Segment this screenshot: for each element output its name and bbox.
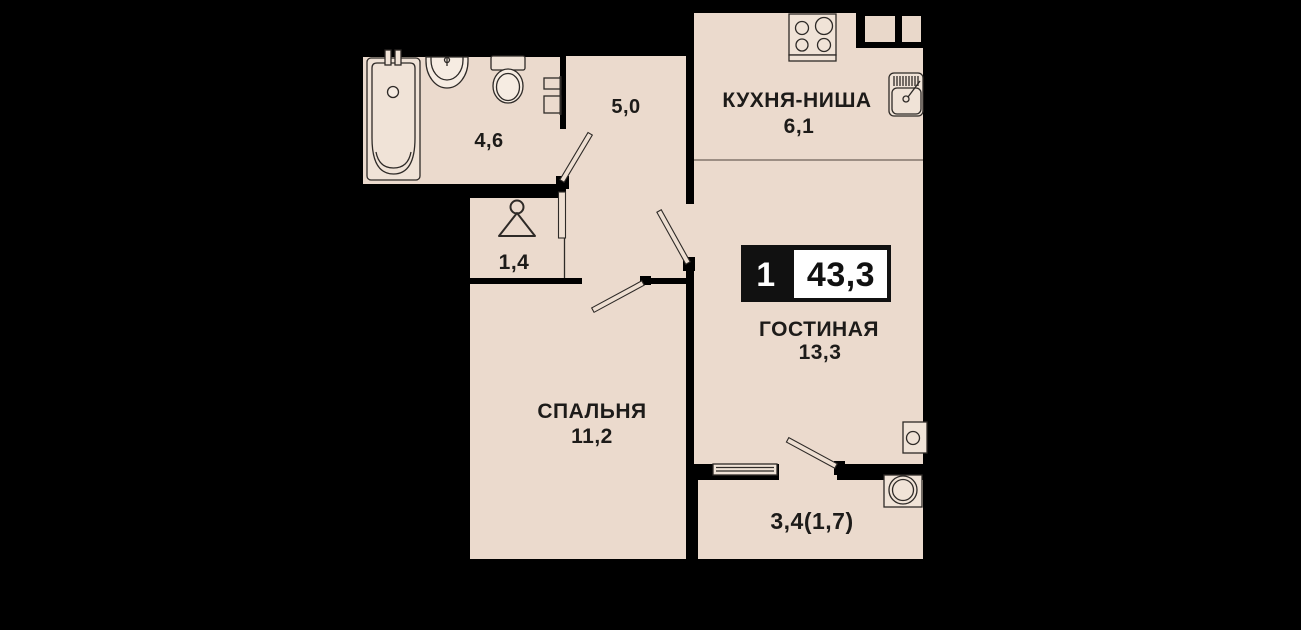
vent-shaft-a [865, 16, 895, 42]
total-area-badge: 1 43,3 [741, 245, 891, 302]
hall-floor [566, 56, 686, 278]
toilet-icon [491, 56, 525, 103]
bedroom-name-label: СПАЛЬНЯ [537, 400, 646, 423]
bathroom-area-label: 4,6 [474, 130, 503, 152]
washing-machine-icon [884, 475, 922, 507]
hall-area-label: 5,0 [611, 96, 640, 118]
living-name-label: ГОСТИНАЯ [759, 318, 879, 341]
balcony-door-opening [779, 464, 837, 480]
wardrobe-door-leaf-icon [559, 192, 566, 238]
floorplan-svg: 1 43,3 4,6 5,0 КУХНЯ-НИША 6,1 ГОСТИНАЯ 1… [0, 0, 1301, 630]
kitchen-sink-icon [889, 73, 923, 116]
badge-rooms-count: 1 [756, 256, 775, 294]
bedroom-door-opening [582, 277, 642, 284]
wardrobe-area-label: 1,4 [499, 251, 530, 274]
bathtub-icon [367, 50, 420, 180]
kitchen-name-label: КУХНЯ-НИША [722, 89, 871, 112]
stove-icon [789, 14, 836, 61]
balcony-area-label: 3,4(1,7) [770, 508, 853, 534]
kitchen-area-label: 6,1 [784, 115, 815, 138]
drainboard-hatching [894, 76, 918, 86]
bedroom-area-label: 11,2 [571, 425, 613, 448]
badge-total-area: 43,3 [807, 256, 875, 294]
hall-door-opening [686, 204, 694, 257]
boiler-icon [903, 422, 927, 453]
vent-shaft-b [902, 16, 921, 42]
window-icon [713, 464, 777, 475]
living-area-label: 13,3 [799, 341, 842, 364]
floorplan-canvas: 1 43,3 4,6 5,0 КУХНЯ-НИША 6,1 ГОСТИНАЯ 1… [0, 0, 1301, 630]
